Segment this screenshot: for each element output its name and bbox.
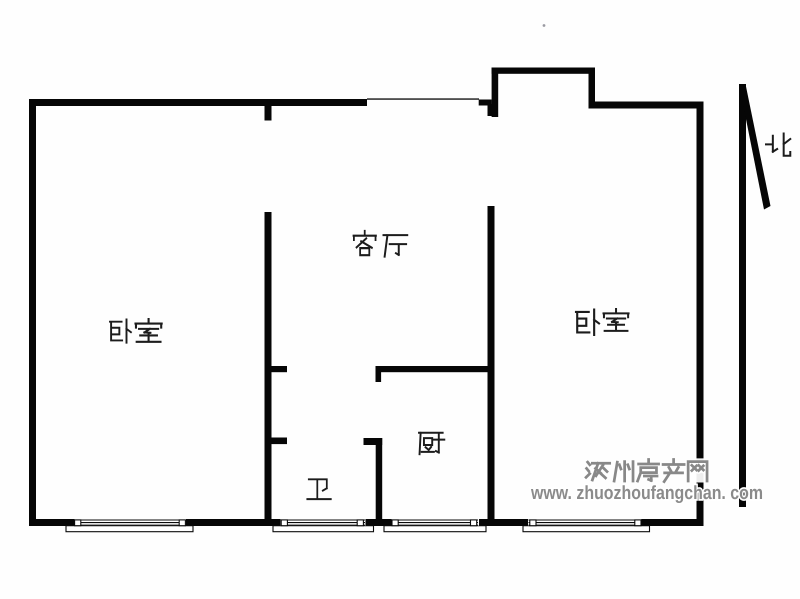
- svg-text:www. zhuozhoufangchan. com: www. zhuozhoufangchan. com: [530, 483, 763, 504]
